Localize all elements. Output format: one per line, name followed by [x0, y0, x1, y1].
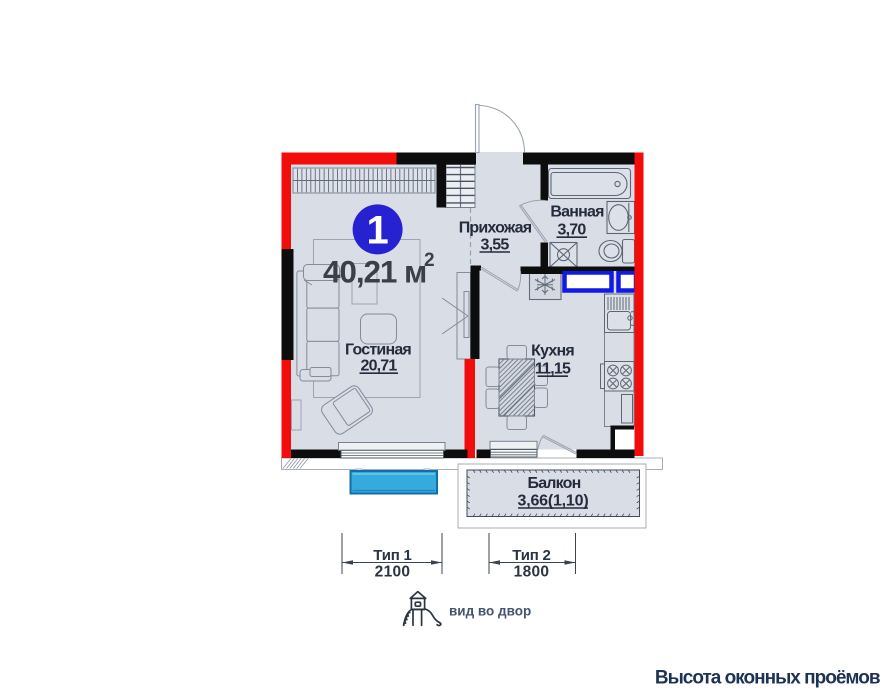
svg-text:1: 1: [366, 209, 388, 253]
svg-text:Кухня: Кухня: [531, 343, 574, 360]
svg-text:вид во двор: вид во двор: [449, 604, 531, 619]
svg-text:Тип 2: Тип 2: [512, 547, 550, 564]
svg-text:Высота оконных проёмов: Высота оконных проёмов: [655, 668, 880, 689]
svg-text:Прихожая: Прихожая: [459, 220, 532, 237]
svg-text:Тип 1: Тип 1: [373, 547, 411, 564]
svg-text:2: 2: [424, 250, 435, 271]
svg-text:2100: 2100: [375, 564, 411, 581]
svg-text:3,70: 3,70: [558, 222, 587, 239]
svg-text:Балкон: Балкон: [528, 475, 581, 492]
svg-text:20,71: 20,71: [360, 358, 397, 375]
svg-text:40,21 м: 40,21 м: [323, 254, 426, 290]
svg-text:3,55: 3,55: [481, 237, 510, 254]
svg-text:11,15: 11,15: [535, 361, 571, 378]
svg-text:3,66(1,10): 3,66(1,10): [518, 493, 589, 510]
svg-text:Гостиная: Гостиная: [345, 342, 411, 359]
svg-text:1800: 1800: [514, 564, 550, 581]
svg-text:Ванная: Ванная: [550, 204, 604, 221]
